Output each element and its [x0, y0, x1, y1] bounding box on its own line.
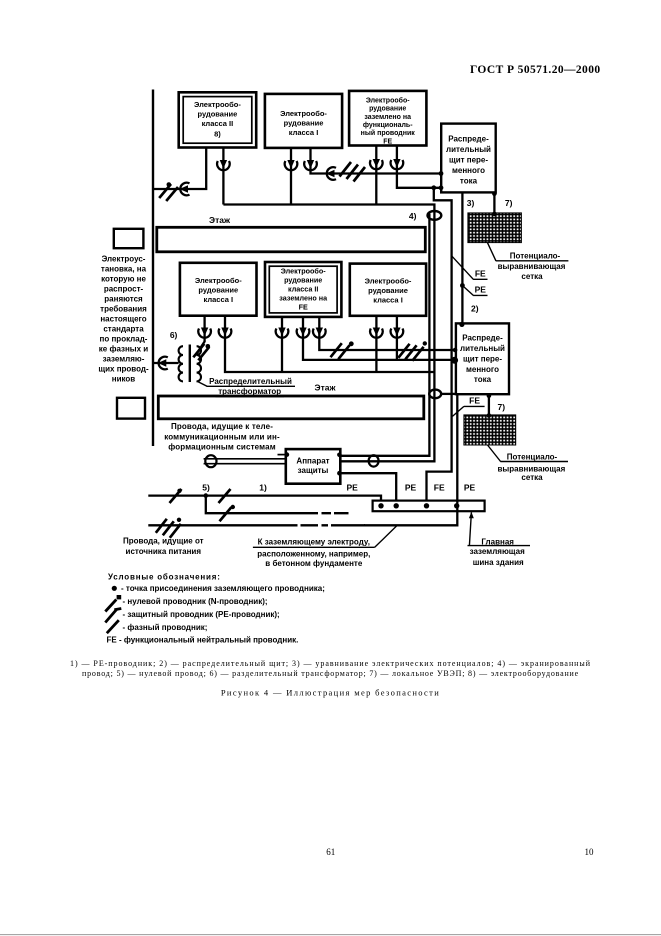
svg-text:раняются: раняются: [104, 295, 143, 304]
svg-text:Распределительный: Распределительный: [209, 377, 292, 386]
svg-text:распрост-: распрост-: [104, 285, 144, 294]
svg-text:FE: FE: [434, 483, 445, 493]
svg-text:выравнивающая: выравнивающая: [497, 465, 565, 474]
svg-text:расположенному, например,: расположенному, например,: [257, 550, 370, 559]
svg-text:провод; 5) — нулевой провод; 6: провод; 5) — нулевой провод; 6) — раздел…: [82, 669, 579, 678]
svg-text:класса I: класса I: [289, 128, 319, 137]
svg-text:Рисунок 4 — Иллюстрация мер бе: Рисунок 4 — Иллюстрация мер безопасности: [221, 688, 440, 698]
svg-text:щих провод-: щих провод-: [98, 365, 149, 374]
svg-text:выравнивающая: выравнивающая: [498, 262, 566, 271]
svg-text:ГОСТ Р 50571.20—2000: ГОСТ Р 50571.20—2000: [470, 64, 601, 76]
svg-text:тока: тока: [474, 375, 492, 384]
svg-text:функциональ-: функциональ-: [363, 122, 413, 129]
svg-text:FE: FE: [383, 138, 392, 145]
svg-text:рудование: рудование: [197, 110, 237, 119]
svg-text:8): 8): [214, 130, 221, 139]
svg-text:Электрообо-: Электрообо-: [195, 276, 242, 285]
svg-text:тановка, на: тановка, на: [101, 265, 147, 274]
svg-text:щит пере-: щит пере-: [463, 354, 502, 363]
svg-text:щит пере-: щит пере-: [449, 155, 488, 164]
svg-text:ке фазных и: ке фазных и: [99, 345, 149, 354]
svg-text:Распреде-: Распреде-: [448, 134, 489, 143]
svg-text:Главная: Главная: [481, 537, 514, 546]
svg-text:заземляю-: заземляю-: [103, 355, 145, 364]
svg-text:рудование: рудование: [368, 286, 408, 295]
svg-text:3): 3): [467, 198, 475, 208]
svg-text:FE: FE: [475, 268, 486, 278]
svg-text:Электрообо-: Электрообо-: [280, 109, 327, 118]
svg-text:рудование: рудование: [369, 106, 406, 113]
svg-text:сетка: сетка: [521, 473, 543, 482]
svg-text:коммуникационным или ин-: коммуникационным или ин-: [164, 433, 280, 442]
svg-text:рудование: рудование: [284, 118, 324, 127]
svg-text:Потенциало-: Потенциало-: [510, 252, 561, 261]
svg-text:менного: менного: [466, 365, 499, 374]
svg-text:ный проводник: ный проводник: [361, 129, 416, 137]
svg-text:Электрообо-: Электрообо-: [281, 266, 327, 275]
svg-text:- точка присоединения заземляю: - точка присоединения заземляющего прово…: [121, 584, 325, 593]
svg-text:FE - функциональный нейтральны: FE - функциональный нейтральный проводни…: [107, 635, 299, 644]
svg-text:заземляющая: заземляющая: [470, 547, 525, 556]
svg-text:1) — РЕ-проводник; 2) — распре: 1) — РЕ-проводник; 2) — распределительны…: [70, 659, 591, 668]
svg-text:PE: PE: [475, 284, 487, 294]
svg-text:настоящего: настоящего: [100, 315, 146, 324]
svg-text:рудование: рудование: [284, 275, 322, 284]
svg-text:Электрообо-: Электрообо-: [366, 96, 410, 104]
svg-text:Распреде-: Распреде-: [462, 334, 503, 343]
svg-text:класса I: класса I: [204, 295, 234, 304]
svg-text:- нулевой проводник (N-проводн: - нулевой проводник (N-проводник);: [123, 597, 268, 606]
svg-text:Электрообо-: Электрообо-: [365, 277, 412, 286]
svg-text:PE: PE: [464, 483, 476, 493]
svg-text:класса I: класса I: [373, 296, 403, 305]
svg-text:6): 6): [170, 330, 178, 340]
svg-text:лительный: лительный: [446, 145, 491, 154]
svg-text:Условные обозначения:: Условные обозначения:: [108, 573, 221, 582]
svg-text:Аппарат: Аппарат: [296, 457, 329, 466]
svg-text:FE: FE: [299, 302, 308, 311]
svg-text:Провода, идущие к теле-: Провода, идущие к теле-: [171, 422, 273, 431]
svg-text:источника питания: источника питания: [126, 547, 202, 556]
svg-text:стандарта: стандарта: [103, 325, 144, 334]
svg-text:менного: менного: [452, 166, 485, 175]
svg-text:заземлено на: заземлено на: [364, 114, 411, 121]
svg-text:- фазный проводник;: - фазный проводник;: [123, 623, 208, 632]
svg-text:ников: ников: [112, 375, 136, 384]
svg-text:- защитный проводник (РЕ-прово: - защитный проводник (РЕ-проводник);: [123, 610, 280, 619]
svg-text:7): 7): [498, 402, 506, 412]
svg-text:класса II: класса II: [288, 284, 318, 293]
svg-text:заземлено на: заземлено на: [279, 293, 328, 302]
svg-text:61: 61: [326, 847, 335, 857]
svg-text:которую не: которую не: [101, 275, 146, 284]
svg-text:формационным системам: формационным системам: [168, 443, 276, 452]
svg-text:защиты: защиты: [298, 466, 329, 475]
svg-text:PE: PE: [347, 483, 359, 493]
svg-text:рудование: рудование: [198, 285, 238, 294]
svg-text:шина здания: шина здания: [473, 558, 524, 567]
svg-text:4): 4): [409, 211, 417, 221]
svg-text:класса II: класса II: [202, 119, 234, 128]
svg-text:по проклад-: по проклад-: [100, 335, 148, 344]
svg-text:2): 2): [471, 304, 479, 314]
svg-text:трансформатор: трансформатор: [218, 387, 281, 396]
svg-text:Электроус-: Электроус-: [102, 255, 146, 264]
svg-text:Потенциало-: Потенциало-: [507, 453, 558, 462]
svg-text:лительный: лительный: [460, 344, 505, 353]
svg-text:в бетонном фундаменте: в бетонном фундаменте: [265, 559, 363, 568]
svg-text:Электрообо-: Электрообо-: [194, 100, 241, 109]
svg-text:Этаж: Этаж: [315, 383, 337, 393]
svg-text:Провода, идущие от: Провода, идущие от: [123, 537, 204, 546]
svg-text:7): 7): [505, 198, 513, 208]
svg-text:5): 5): [202, 483, 210, 493]
svg-text:тока: тока: [460, 176, 478, 185]
svg-text:10: 10: [585, 847, 595, 857]
svg-text:1): 1): [259, 483, 267, 493]
svg-text:сетка: сетка: [521, 272, 543, 281]
svg-text:Этаж: Этаж: [209, 215, 231, 225]
svg-text:FE: FE: [469, 395, 480, 405]
svg-text:К заземляющему электроду,: К заземляющему электроду,: [258, 538, 370, 547]
svg-text:PE: PE: [405, 483, 417, 493]
svg-text:требования: требования: [100, 305, 147, 314]
